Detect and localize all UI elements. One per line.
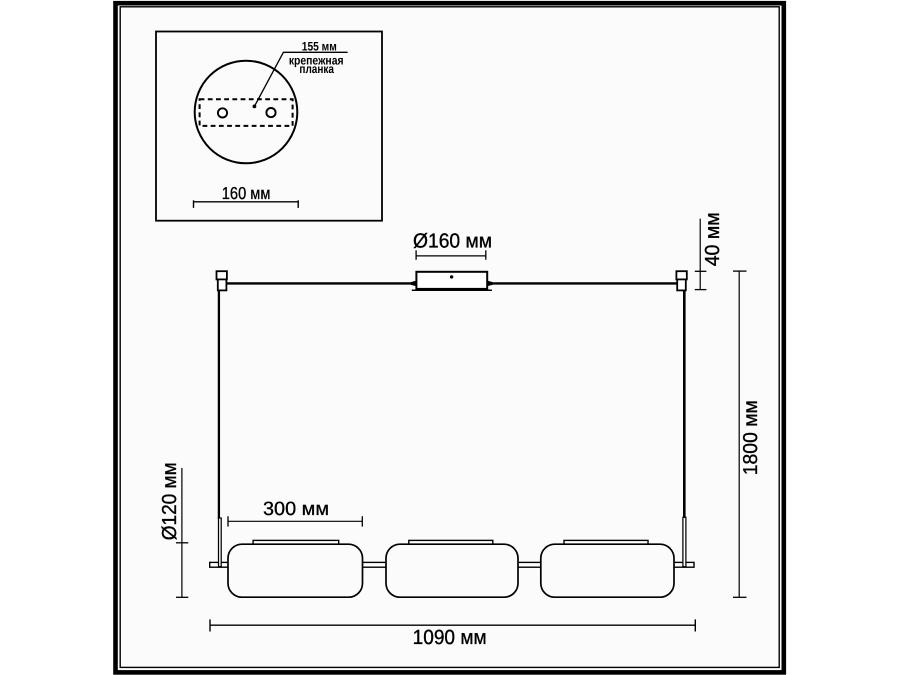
svg-text:Ø120 мм: Ø120 мм bbox=[159, 462, 181, 540]
svg-text:300 мм: 300 мм bbox=[263, 499, 329, 520]
svg-text:1090 мм: 1090 мм bbox=[413, 626, 487, 649]
svg-text:1800 мм: 1800 мм bbox=[740, 400, 762, 475]
svg-text:планка: планка bbox=[299, 62, 334, 76]
svg-text:155 мм: 155 мм bbox=[302, 40, 337, 54]
svg-text:40 мм: 40 мм bbox=[702, 212, 724, 266]
svg-text:160 мм: 160 мм bbox=[222, 183, 271, 203]
svg-text:Ø160 мм: Ø160 мм bbox=[413, 231, 492, 253]
